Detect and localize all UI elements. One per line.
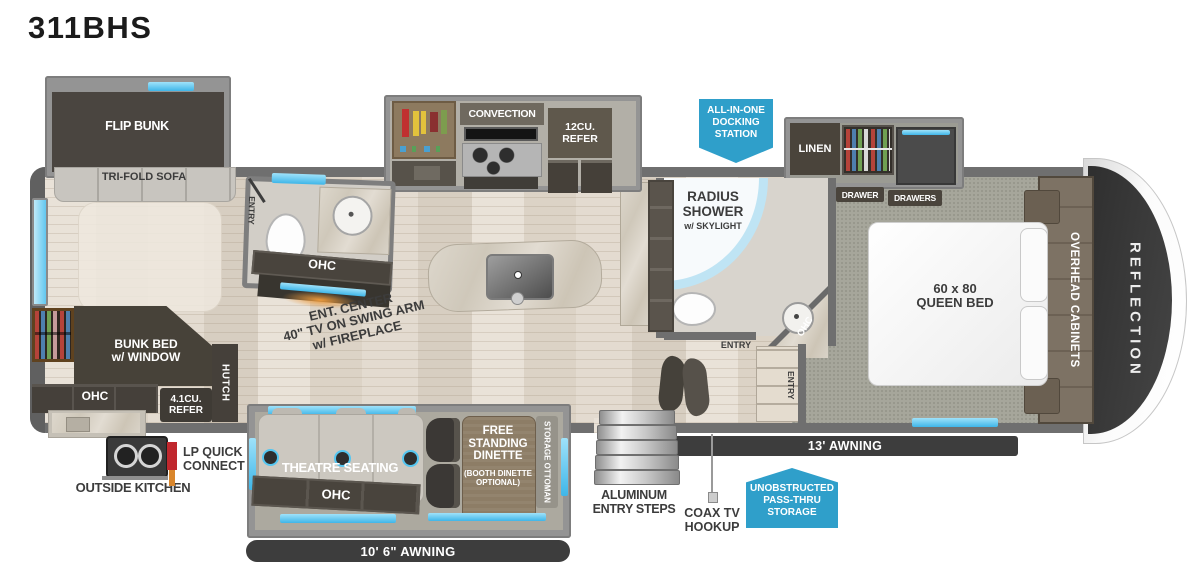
drawer-label: DRAWER bbox=[842, 190, 879, 200]
bath1-entry-label: ENTRY bbox=[246, 196, 257, 225]
pantry-item-green bbox=[441, 110, 447, 134]
kitchen-tall-cabinet bbox=[648, 180, 674, 332]
entry-label-hall: ENTRY bbox=[714, 341, 758, 351]
pantry-shelf-items bbox=[400, 146, 448, 152]
floorplan-311bhs: 311BHS REFLECTION OVERHEAD CABINETS 60 x… bbox=[0, 0, 1200, 587]
rug bbox=[78, 202, 222, 312]
aluminum-steps-icon bbox=[594, 410, 678, 486]
slide-bottom-accent bbox=[428, 513, 546, 521]
step-tread bbox=[594, 470, 680, 485]
bunk-ohc-label: OHC bbox=[32, 390, 158, 403]
vanity-sink-drain bbox=[794, 314, 799, 319]
drawer-label: DRAWERS bbox=[894, 193, 936, 203]
steps-divider-wall bbox=[798, 344, 806, 424]
lp-connect-marker-icon bbox=[167, 442, 177, 470]
slide-right-window bbox=[561, 438, 568, 496]
page-title: 311BHS bbox=[28, 10, 152, 46]
entry-label-steps: ENTRY bbox=[784, 360, 798, 410]
drawer-box: DRAWERS bbox=[888, 190, 942, 206]
tri-fold-sofa-label: TRI-FOLD SOFA bbox=[58, 171, 230, 183]
flip-bunk-label: FLIP BUNK bbox=[62, 120, 212, 134]
island-faucet bbox=[511, 292, 524, 305]
coax-connector-icon bbox=[708, 492, 718, 503]
wardrobe-rod bbox=[844, 148, 892, 150]
storage-ottoman-label: STORAGE OTTOMAN bbox=[536, 416, 558, 508]
pantry-item-yellow bbox=[413, 111, 419, 136]
front-awning-bar: 13' AWNING bbox=[672, 436, 1018, 456]
pantry-item-maroon bbox=[430, 112, 438, 132]
bunk-bed-label: BUNK BED w/ WINDOW bbox=[94, 338, 198, 364]
overhead-cabinets-label: OVERHEAD CABINETS bbox=[1062, 180, 1086, 420]
step-tread bbox=[596, 440, 678, 455]
bath1-window bbox=[272, 173, 326, 185]
convection-header: CONVECTION bbox=[460, 103, 544, 125]
slide-bottom-accent bbox=[280, 514, 396, 523]
dinette-chair bbox=[426, 464, 460, 508]
dinette-label: FREE STANDING DINETTE bbox=[463, 425, 533, 463]
wardrobe-clothes bbox=[846, 129, 890, 171]
outside-kitchen-sink bbox=[66, 417, 90, 432]
flip-bunk-window bbox=[148, 82, 194, 91]
pillow bbox=[1020, 306, 1048, 380]
nightstand-top bbox=[1024, 190, 1060, 224]
theatre-label: THEATRE SEATING bbox=[262, 461, 418, 475]
brand-logo: REFLECTION bbox=[1124, 218, 1146, 402]
island-sink-drain bbox=[514, 271, 522, 279]
stove-burner-icon bbox=[114, 444, 138, 468]
refrigerator: 12CU. REFER bbox=[548, 108, 612, 158]
pantry-item-yellow bbox=[421, 111, 426, 134]
range-base bbox=[464, 177, 538, 189]
bunk-refer: 4.1CU. REFER bbox=[160, 388, 212, 422]
dresser-accent bbox=[902, 130, 950, 135]
pillow bbox=[1020, 228, 1048, 302]
rear-window bbox=[32, 198, 48, 306]
drawer-box: DRAWER bbox=[836, 187, 884, 202]
passthru-storage-badge: UNOBSTRUCTED PASS-THRU STORAGE bbox=[746, 468, 838, 528]
bedroom-window bbox=[912, 418, 998, 427]
coax-label: COAX TV HOOKUP bbox=[677, 507, 747, 535]
shower-sub-label: w/ SKYLIGHT bbox=[668, 222, 758, 232]
dinette-chair bbox=[426, 418, 460, 462]
step-tread bbox=[595, 455, 679, 470]
refer-door bbox=[548, 160, 578, 193]
hutch-label: HUTCH bbox=[212, 344, 238, 422]
dresser bbox=[896, 127, 956, 185]
stove-burner-icon bbox=[138, 444, 162, 468]
bookshelf bbox=[32, 308, 74, 362]
step-tread bbox=[599, 410, 675, 425]
front-awning-label: 13' AWNING bbox=[808, 439, 882, 453]
docking-station-badge: ALL-IN-ONE DOCKING STATION bbox=[699, 99, 773, 163]
pantry-item-red bbox=[402, 109, 409, 137]
dinette-note-label: (BOOTH DINETTE OPTIONAL) bbox=[463, 470, 533, 488]
bath-right-wall bbox=[828, 178, 836, 346]
rear-awning-bar: 10' 6" AWNING bbox=[246, 540, 570, 562]
shower-label: RADIUS SHOWER bbox=[668, 190, 758, 220]
refer-door bbox=[581, 160, 612, 193]
lp-connect-label: LP QUICK CONNECT bbox=[183, 446, 255, 474]
queen-bed-label: 60 x 80 QUEEN BED bbox=[890, 282, 1020, 311]
bath-bottom-wall bbox=[664, 332, 756, 340]
coax-line-icon bbox=[711, 434, 713, 494]
microwave bbox=[464, 127, 538, 141]
lp-connect-marker-base-icon bbox=[169, 470, 175, 486]
linen-closet: LINEN bbox=[790, 123, 840, 175]
rear-awning-label: 10' 6" AWNING bbox=[360, 544, 455, 559]
kitchen-counter bbox=[620, 182, 650, 326]
cooktop bbox=[462, 143, 542, 177]
step-tread bbox=[597, 425, 677, 440]
entry-steps-label: ALUMINUM ENTRY STEPS bbox=[576, 489, 692, 517]
outside-kitchen-label: OUTSIDE KITCHEN bbox=[66, 481, 200, 495]
pantry-base-panel bbox=[414, 166, 440, 180]
